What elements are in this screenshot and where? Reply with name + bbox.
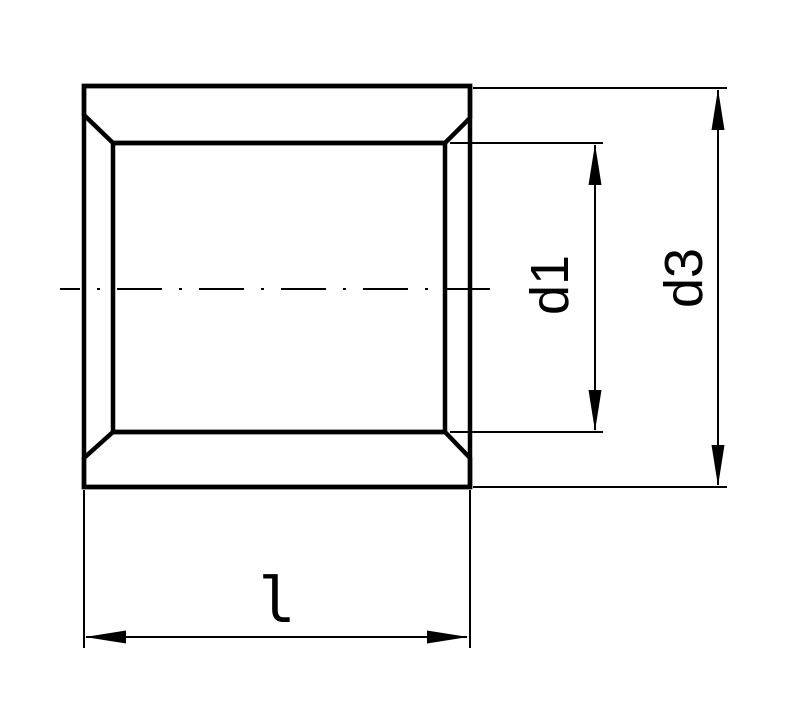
d3-arrow-down <box>712 445 725 486</box>
dimension-d1: d1 <box>450 143 603 432</box>
outer-contour <box>84 86 470 487</box>
top-wall-hatch-region <box>84 86 470 143</box>
d1-arrow-down <box>589 390 602 431</box>
bushing-section <box>84 86 470 487</box>
d1-arrow-up <box>589 144 602 185</box>
drawing-canvas: d1 d3 l <box>0 0 800 721</box>
l-label: l <box>258 564 295 637</box>
d1-label: d1 <box>520 255 580 315</box>
dimension-l: l <box>84 490 470 648</box>
dimension-d3: d3 <box>473 88 727 487</box>
l-arrow-right <box>427 631 468 644</box>
l-arrow-left <box>85 631 126 644</box>
technical-drawing: d1 d3 l <box>0 0 800 721</box>
bottom-wall-hatch-region <box>84 432 470 487</box>
d3-arrow-up <box>712 89 725 130</box>
d3-label: d3 <box>654 248 714 308</box>
